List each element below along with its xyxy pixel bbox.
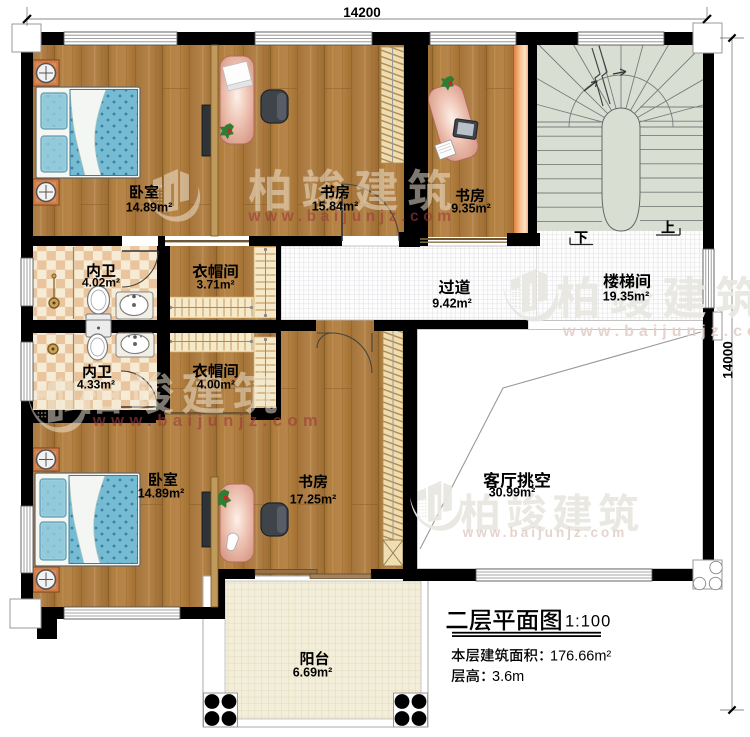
svg-text:14200: 14200 [343, 5, 381, 20]
svg-text:14000: 14000 [721, 341, 736, 379]
svg-text:14.89m²: 14.89m² [126, 201, 173, 215]
svg-text:4.02m²: 4.02m² [82, 276, 120, 290]
svg-text:www.baijunjz.com: www.baijunjz.com [92, 412, 323, 430]
svg-text:4.33m²: 4.33m² [77, 378, 115, 392]
svg-text:15.84m²: 15.84m² [312, 200, 359, 214]
svg-text:14.89m²: 14.89m² [138, 487, 185, 501]
svg-text:30.99m²: 30.99m² [489, 486, 536, 500]
svg-text:www.baijunjz.com: www.baijunjz.com [562, 323, 750, 340]
svg-text:17.25m²: 17.25m² [290, 493, 337, 507]
svg-text:1:100: 1:100 [565, 613, 611, 631]
svg-text:3.71m²: 3.71m² [196, 278, 234, 292]
svg-text:9.35m²: 9.35m² [451, 202, 491, 216]
svg-text:9.42m²: 9.42m² [432, 297, 472, 311]
svg-text:176.66m²: 176.66m² [550, 649, 611, 665]
svg-text:3.6m: 3.6m [492, 669, 524, 685]
svg-text:www.baijunjz.com: www.baijunjz.com [462, 525, 628, 540]
svg-text:6.69m²: 6.69m² [293, 666, 333, 680]
svg-text:19.35m²: 19.35m² [603, 290, 650, 304]
svg-text:4.00m²: 4.00m² [197, 378, 235, 392]
